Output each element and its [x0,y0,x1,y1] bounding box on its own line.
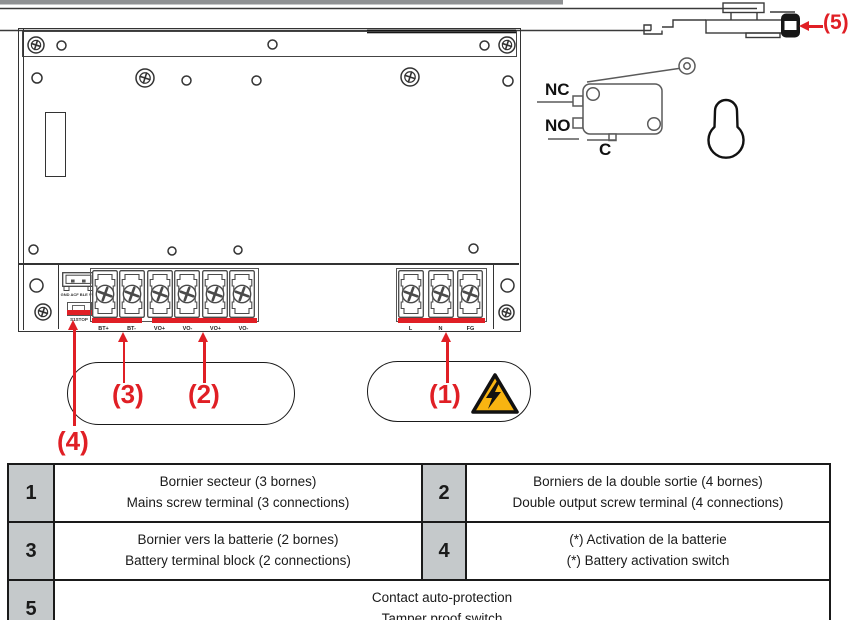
screw-icon [26,35,46,55]
terminal-vo2-minus[interactable] [229,270,255,318]
legend-desc-3-en: Battery terminal block (2 connections) [61,551,415,572]
callout-5: (5) [823,11,849,35]
callout-1-arrow-head [441,332,451,342]
terminal-neutral[interactable] [428,270,454,318]
hole-icon [166,244,178,256]
legend-desc-2-fr: Borniers de la double sortie (4 bornes) [473,472,823,493]
legend-desc-4: (*) Activation de la batterie (*) Batter… [466,522,830,580]
hole-icon [499,277,516,294]
terminal-bt-plus[interactable] [92,270,118,318]
battery-activation-switch-highlight [67,310,92,315]
legend-num-4: 4 [422,522,466,580]
label-vo1-plus: VO+ [146,326,173,332]
legend-row-3-4: 3 Bornier vers la batterie (2 bornes) Ba… [8,522,830,580]
callout-1-arrow-line [446,341,449,383]
legend-desc-2: Borniers de la double sortie (4 bornes) … [466,464,830,522]
battery-terminals-underline [92,318,142,323]
terminal-vo2-plus[interactable] [202,270,228,318]
callout-5-arrow-line [808,25,823,28]
output-terminal-labels: BT+ BT- VO+ VO- VO+ VO- [90,326,257,332]
mains-terminals-underline [398,318,485,323]
hole-icon [232,243,244,255]
mains-terminal-row [398,270,483,318]
hole-icon [180,74,193,87]
microswitch-icon [535,52,710,152]
label-bt-plus: BT+ [90,326,117,332]
chassis-inner-edge [23,28,24,330]
screw-icon [497,303,516,322]
legend-num-1: 1 [8,464,54,522]
keyhole-icon [703,94,749,166]
callout-2-arrow-line [203,341,206,383]
legend-num-3: 3 [8,522,54,580]
ventilation-slot [45,112,66,177]
legend-row-1-2: 1 Bornier secteur (3 bornes) Mains screw… [8,464,830,522]
left-callout-pill [67,362,295,425]
callout-3-arrow-line [123,341,126,383]
legend-desc-1-fr: Bornier secteur (3 bornes) [61,472,415,493]
terminal-vo1-minus[interactable] [174,270,200,318]
callout-2: (2) [188,379,220,410]
legend-desc-4-fr: (*) Activation de la batterie [473,530,823,551]
legend-desc-4-en: (*) Battery activation switch [473,551,823,572]
screw-icon [134,67,156,89]
label-line: L [396,326,425,332]
terminal-line[interactable] [398,270,424,318]
legend-desc-5-en: Tamper proof switch [61,609,823,620]
callout-4-arrow-head [68,320,78,330]
strip-divider-right [493,264,494,329]
callout-1: (1) [429,379,461,410]
callout-2-arrow-head [198,332,208,342]
screw-icon [399,66,421,88]
label-vo2-minus: VO- [230,326,257,332]
screw-icon [33,302,53,322]
screw-icon [497,35,517,55]
legend-row-5: 5 Contact auto-protection Tamper proof s… [8,580,830,620]
output-terminal-row [92,270,255,318]
label-vo1-minus: VO- [174,326,201,332]
terminal-vo1-plus[interactable] [147,270,173,318]
hole-icon [501,74,515,88]
hole-icon [467,242,480,255]
legend-desc-3: Bornier vers la batterie (2 bornes) Batt… [54,522,422,580]
high-voltage-warning-icon [470,372,520,416]
output-terminals-underline [152,318,257,323]
legend-num-2: 2 [422,464,466,522]
legend-desc-2-en: Double output screw terminal (4 connecti… [473,493,823,514]
manual-diagram-page: (5) GND ACF BLE VCC S1STOP BT+ BT- VO+ V… [0,0,851,620]
hole-icon [27,243,40,256]
hole-icon [266,38,279,51]
hole-icon [478,39,491,52]
legend-num-5: 5 [8,580,54,620]
hole-icon [55,39,68,52]
legend-desc-3-fr: Bornier vers la batterie (2 bornes) [61,530,415,551]
callout-4: (4) [57,426,89,457]
terminal-bt-minus[interactable] [119,270,145,318]
terminal-strip-top-edge [18,263,519,265]
hole-icon [30,71,44,85]
legend-desc-5: Contact auto-protection Tamper proof swi… [54,580,830,620]
callout-3-arrow-head [118,332,128,342]
callout-3: (3) [112,379,144,410]
legend-desc-1: Bornier secteur (3 bornes) Mains screw t… [54,464,422,522]
legend-desc-1-en: Mains screw terminal (3 connections) [61,493,415,514]
label-ground: FG [456,326,485,332]
hole-icon [250,74,263,87]
hole-icon [28,277,45,294]
legend-desc-5-fr: Contact auto-protection [61,588,823,609]
callout-4-arrow-line [73,329,76,426]
terminal-ground[interactable] [457,270,483,318]
legend-table: 1 Bornier secteur (3 bornes) Mains screw… [7,463,831,620]
